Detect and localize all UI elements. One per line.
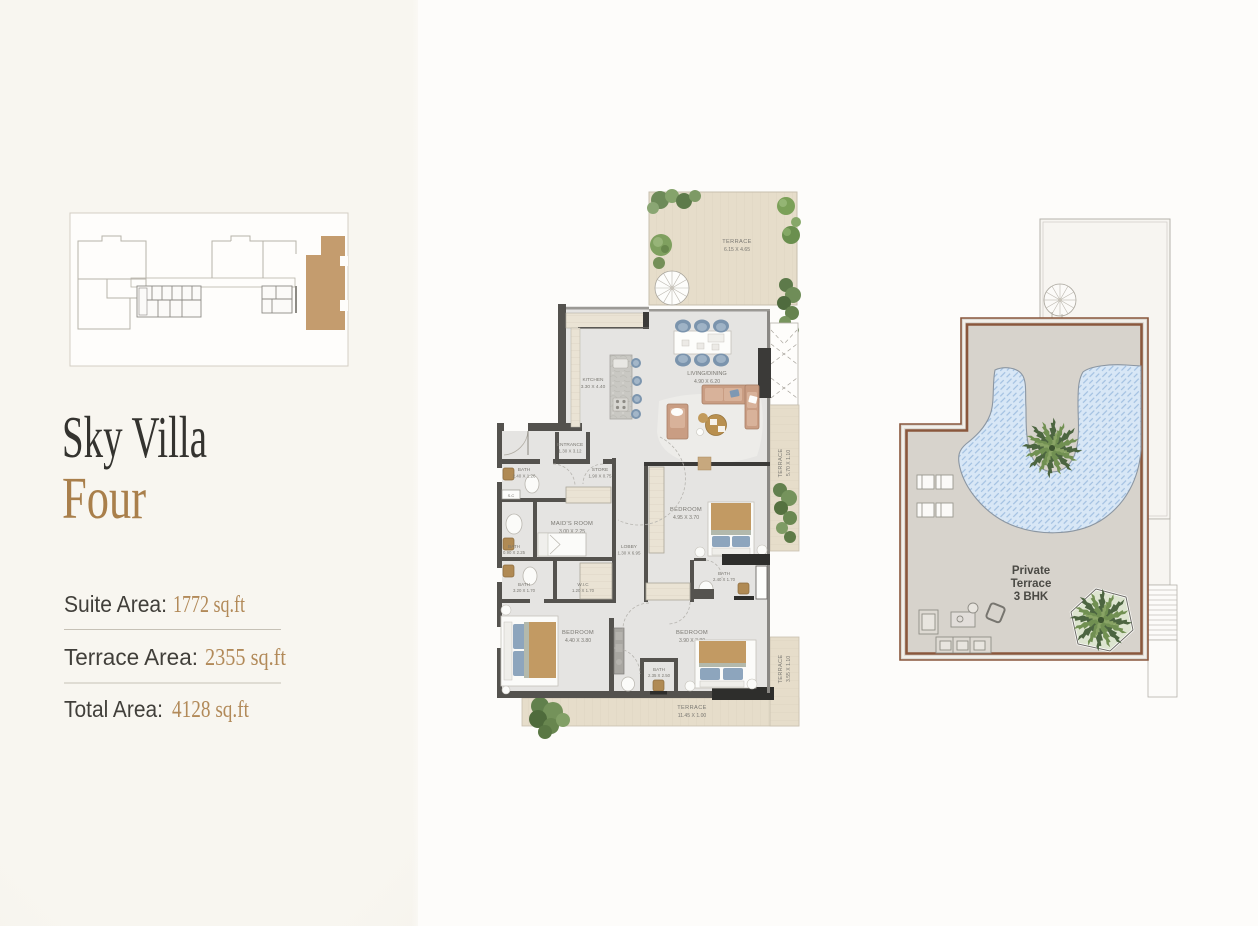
svg-text:Terrace: Terrace: [1011, 578, 1052, 590]
svg-text:2.35 X 2.50: 2.35 X 2.50: [648, 673, 671, 678]
svg-text:BATH: BATH: [653, 667, 665, 672]
svg-text:Sky Villa: Sky Villa: [62, 404, 207, 470]
svg-text:5.70 X 1.10: 5.70 X 1.10: [786, 450, 792, 476]
svg-text:1.90 X 0.75: 1.90 X 0.75: [588, 474, 612, 479]
svg-text:2.40 X 1.70: 2.40 X 1.70: [713, 577, 736, 582]
svg-text:4.90 X 6.20: 4.90 X 6.20: [694, 379, 720, 385]
svg-text:TERRACE: TERRACE: [778, 655, 784, 684]
svg-text:Terrace Area:: Terrace Area:: [64, 644, 198, 670]
svg-text:ENTRANCE: ENTRANCE: [557, 442, 583, 448]
svg-text:LOBBY: LOBBY: [621, 544, 638, 550]
svg-text:2355 sq.ft: 2355 sq.ft: [205, 645, 286, 671]
svg-text:TERRACE: TERRACE: [722, 239, 752, 245]
svg-text:Total Area:: Total Area:: [64, 696, 163, 722]
svg-text:Four: Four: [62, 465, 146, 531]
svg-text:4128 sq.ft: 4128 sq.ft: [172, 697, 249, 723]
svg-text:1772 sq.ft: 1772 sq.ft: [173, 592, 245, 618]
svg-text:LIVING/DINING: LIVING/DINING: [687, 371, 726, 377]
svg-text:4.95 X 3.70: 4.95 X 3.70: [673, 515, 699, 521]
svg-text:Private: Private: [1012, 565, 1050, 577]
svg-text:2.40 X 1.26: 2.40 X 1.26: [512, 474, 536, 479]
svg-text:6.15 X 4.65: 6.15 X 4.65: [724, 247, 750, 253]
svg-text:TERRACE: TERRACE: [778, 449, 784, 478]
svg-text:BATH: BATH: [518, 467, 531, 473]
svg-text:KITCHEN: KITCHEN: [582, 377, 604, 383]
svg-text:0.90 X 2.25: 0.90 X 2.25: [503, 550, 526, 555]
svg-text:3 BHK: 3 BHK: [1014, 591, 1049, 603]
svg-text:3.30 X 4.40: 3.30 X 4.40: [581, 384, 606, 390]
svg-text:MAID'S ROOM: MAID'S ROOM: [551, 521, 593, 527]
svg-text:3.55 X 1.10: 3.55 X 1.10: [786, 656, 792, 682]
svg-text:1.30 X 3.12: 1.30 X 3.12: [558, 449, 582, 454]
svg-text:BATH: BATH: [508, 544, 520, 549]
svg-text:TERRACE: TERRACE: [677, 705, 707, 711]
svg-text:11.45 X 1.00: 11.45 X 1.00: [678, 713, 707, 719]
svg-text:BATH: BATH: [718, 571, 730, 576]
svg-text:W.I.C: W.I.C: [577, 582, 589, 587]
svg-text:4.40 X 3.80: 4.40 X 3.80: [565, 638, 591, 644]
svg-text:BEDROOM: BEDROOM: [670, 507, 702, 513]
svg-text:S.C: S.C: [508, 493, 515, 498]
svg-text:1.30 X 6.95: 1.30 X 6.95: [617, 551, 641, 556]
svg-text:Suite Area:: Suite Area:: [64, 591, 167, 617]
svg-text:BEDROOM: BEDROOM: [562, 630, 594, 636]
svg-text:BEDROOM: BEDROOM: [676, 630, 708, 636]
svg-text:3.20 X 1.70: 3.20 X 1.70: [513, 588, 536, 593]
svg-text:STORE: STORE: [592, 467, 608, 473]
svg-text:1.20 X 1.70: 1.20 X 1.70: [572, 588, 595, 593]
svg-text:BATH: BATH: [518, 582, 530, 587]
